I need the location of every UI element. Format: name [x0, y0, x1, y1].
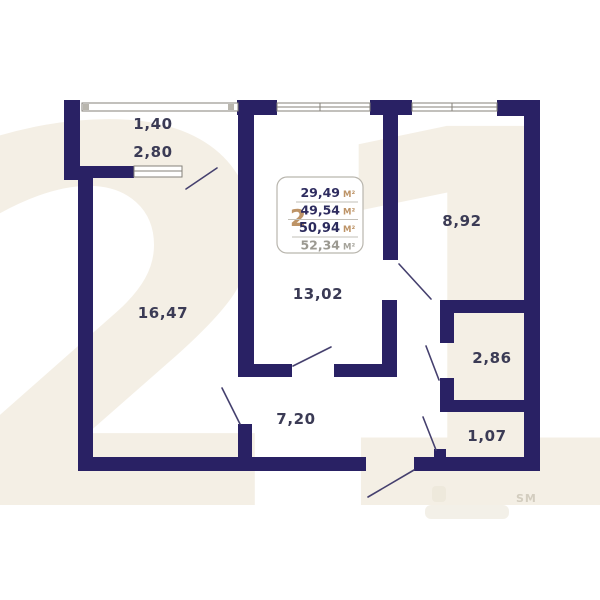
info-area-value-1: 29,49 — [300, 185, 340, 200]
room-label-kitchen: 8,92 — [442, 212, 481, 230]
wall-bottom-left — [78, 457, 366, 471]
room-label-balcony-width: 1,40 — [133, 115, 172, 133]
wall-living-hall-stub — [238, 424, 252, 457]
info-area-value-4: 52,34 — [300, 238, 340, 253]
room-label-balcony-length: 2,80 — [133, 143, 172, 161]
window-balcony — [82, 103, 238, 111]
wall-top-right-corner — [497, 100, 540, 116]
window-balcony-mark-right — [228, 104, 234, 110]
wall-bedroom-kitchen — [383, 112, 398, 260]
info-area-value-2: 49,54 — [300, 203, 340, 218]
info-area-value-3: 50,94 — [299, 221, 340, 236]
wall-left-outer — [78, 166, 93, 471]
info-box: 2 29,49 М² 49,54 М² 50,94 М² 52,34 М² — [277, 177, 363, 253]
wall-right-outer — [524, 100, 540, 471]
wall-bathroom-left-upper — [440, 313, 454, 343]
wall-balcony-bottom — [64, 166, 134, 178]
wall-bottom-right — [414, 457, 540, 471]
wall-bedroom-bottom-left — [238, 364, 292, 377]
info-area-unit-4: М² — [343, 243, 355, 253]
watermark-trademark: SM — [516, 492, 537, 505]
watermark-glyph-shape — [432, 486, 446, 502]
info-area-unit-2: М² — [343, 208, 355, 218]
info-area-unit-3: М² — [343, 225, 355, 235]
wall-bathroom-bottom — [440, 400, 530, 412]
wall-living-bedroom — [238, 100, 254, 376]
window-balcony-mark-left — [83, 104, 89, 110]
room-label-bedroom: 13,02 — [293, 285, 343, 303]
info-area-unit-1: М² — [343, 190, 355, 200]
wall-bedroom-bottom-right — [334, 364, 397, 377]
room-label-hallway: 7,20 — [276, 410, 315, 428]
room-label-living: 16,47 — [138, 304, 188, 322]
watermark-wordmark-shape — [425, 505, 509, 519]
room-label-bathroom: 2,86 — [472, 349, 511, 367]
floor-plan-svg: 21 SM — [0, 0, 600, 600]
wall-bathroom-top — [440, 300, 540, 313]
room-label-storage: 1,07 — [467, 427, 506, 445]
floor-plan-stage: 21 SM — [0, 0, 600, 600]
